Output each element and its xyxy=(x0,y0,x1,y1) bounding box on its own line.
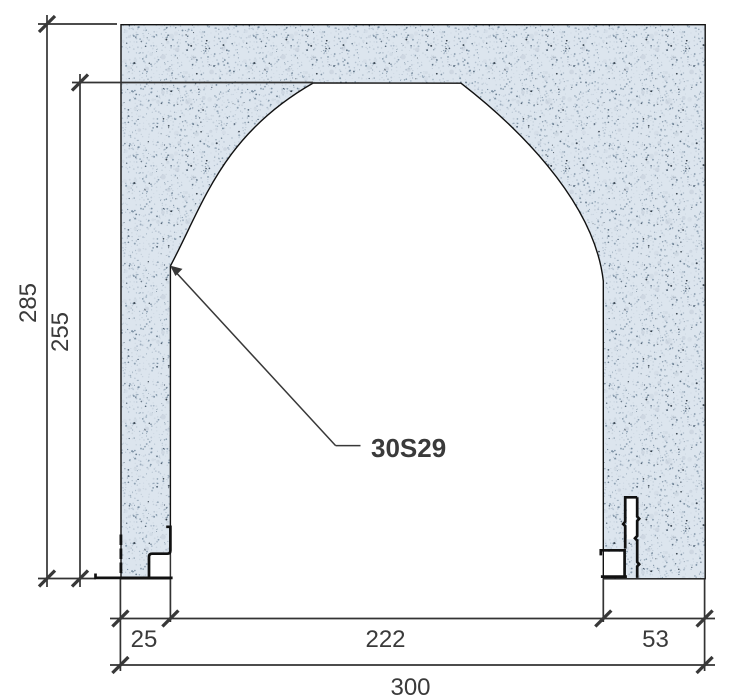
svg-text:285: 285 xyxy=(15,283,42,323)
svg-text:25: 25 xyxy=(131,626,158,653)
svg-text:222: 222 xyxy=(365,626,405,653)
svg-text:53: 53 xyxy=(642,626,669,653)
svg-text:30S29: 30S29 xyxy=(371,433,446,463)
svg-text:255: 255 xyxy=(47,312,74,352)
svg-text:300: 300 xyxy=(390,674,430,700)
